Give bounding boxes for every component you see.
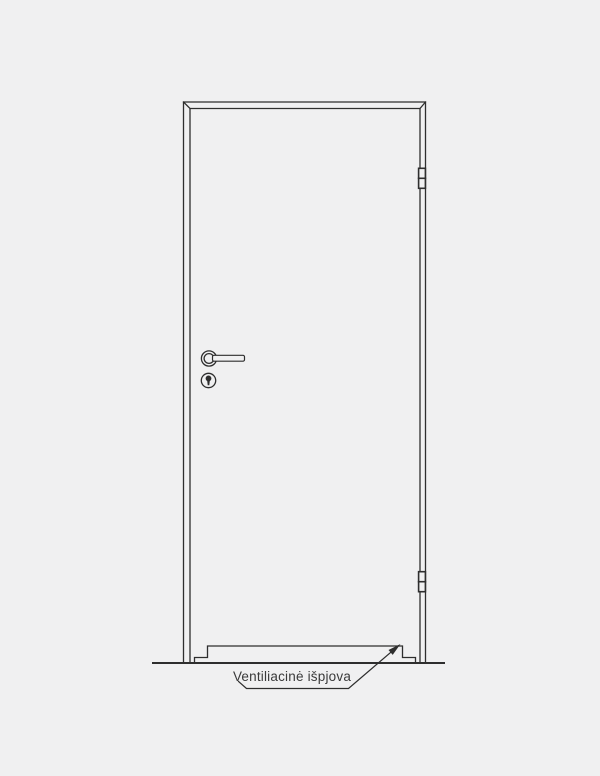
door-drawing-canvas: Ventiliacinė išpjova xyxy=(0,0,600,776)
door-technical-drawing: Ventiliacinė išpjova xyxy=(0,0,600,776)
door-handle-lever xyxy=(213,355,245,361)
drawing-background xyxy=(0,0,600,776)
keyhole-cylinder-circle xyxy=(206,376,212,382)
ventilation-label: Ventiliacinė išpjova xyxy=(233,669,351,684)
